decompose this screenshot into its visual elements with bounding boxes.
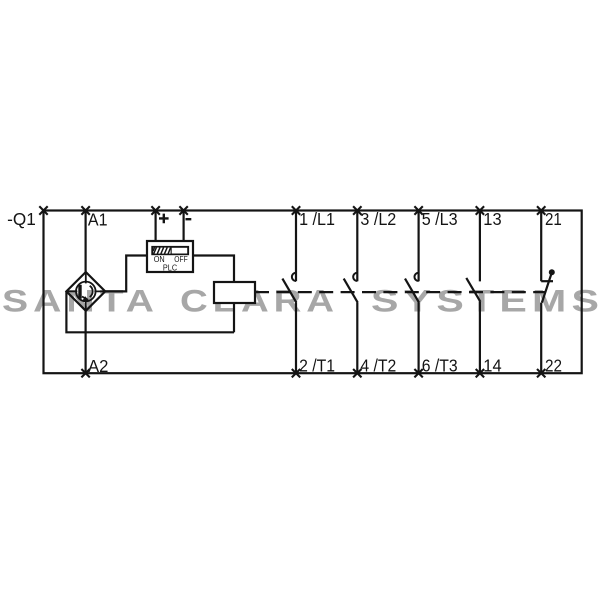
svg-text:2 /T1: 2 /T1 xyxy=(299,356,335,376)
svg-text:3 /L2: 3 /L2 xyxy=(360,209,396,229)
svg-text:6 /T3: 6 /T3 xyxy=(422,356,458,376)
svg-text:PLC: PLC xyxy=(163,263,178,272)
svg-text:1 /L1: 1 /L1 xyxy=(299,209,335,229)
svg-text:CLARA: CLARA xyxy=(180,283,339,319)
svg-text:A2: A2 xyxy=(88,356,108,376)
svg-text:5 /L3: 5 /L3 xyxy=(422,209,458,229)
svg-text:14: 14 xyxy=(483,356,502,376)
svg-text:A1: A1 xyxy=(88,209,108,229)
svg-text:SYSTEMS: SYSTEMS xyxy=(371,283,600,319)
svg-text:4 /T2: 4 /T2 xyxy=(360,356,396,376)
svg-text:13: 13 xyxy=(483,209,501,229)
svg-text:-Q1: -Q1 xyxy=(7,209,36,229)
svg-text:22: 22 xyxy=(545,356,562,376)
svg-text:21: 21 xyxy=(545,209,562,229)
